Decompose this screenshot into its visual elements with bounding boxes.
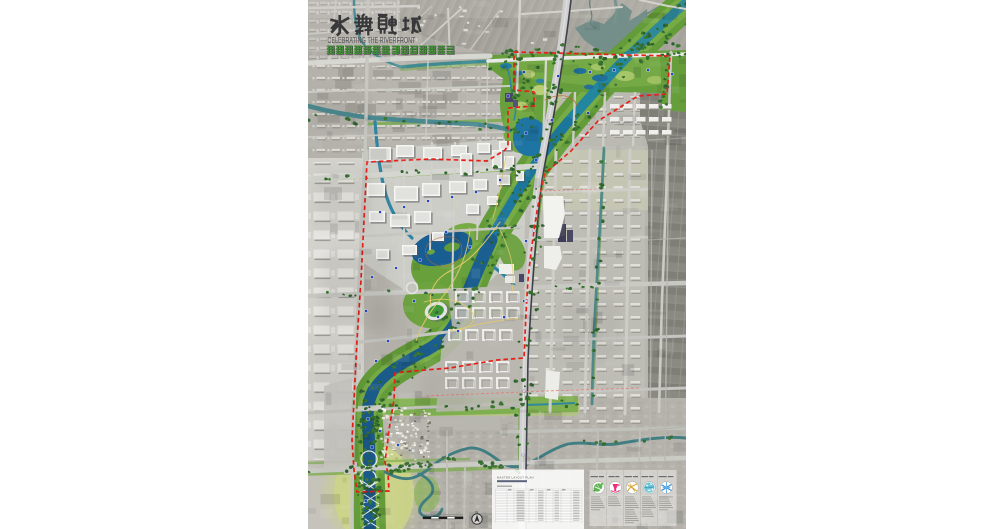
svg-text:CELEBRATING THE RIVERFRONT: CELEBRATING THE RIVERFRONT <box>328 37 416 45</box>
svg-text:MASTER LAYOUT PLAN: MASTER LAYOUT PLAN <box>497 476 534 480</box>
